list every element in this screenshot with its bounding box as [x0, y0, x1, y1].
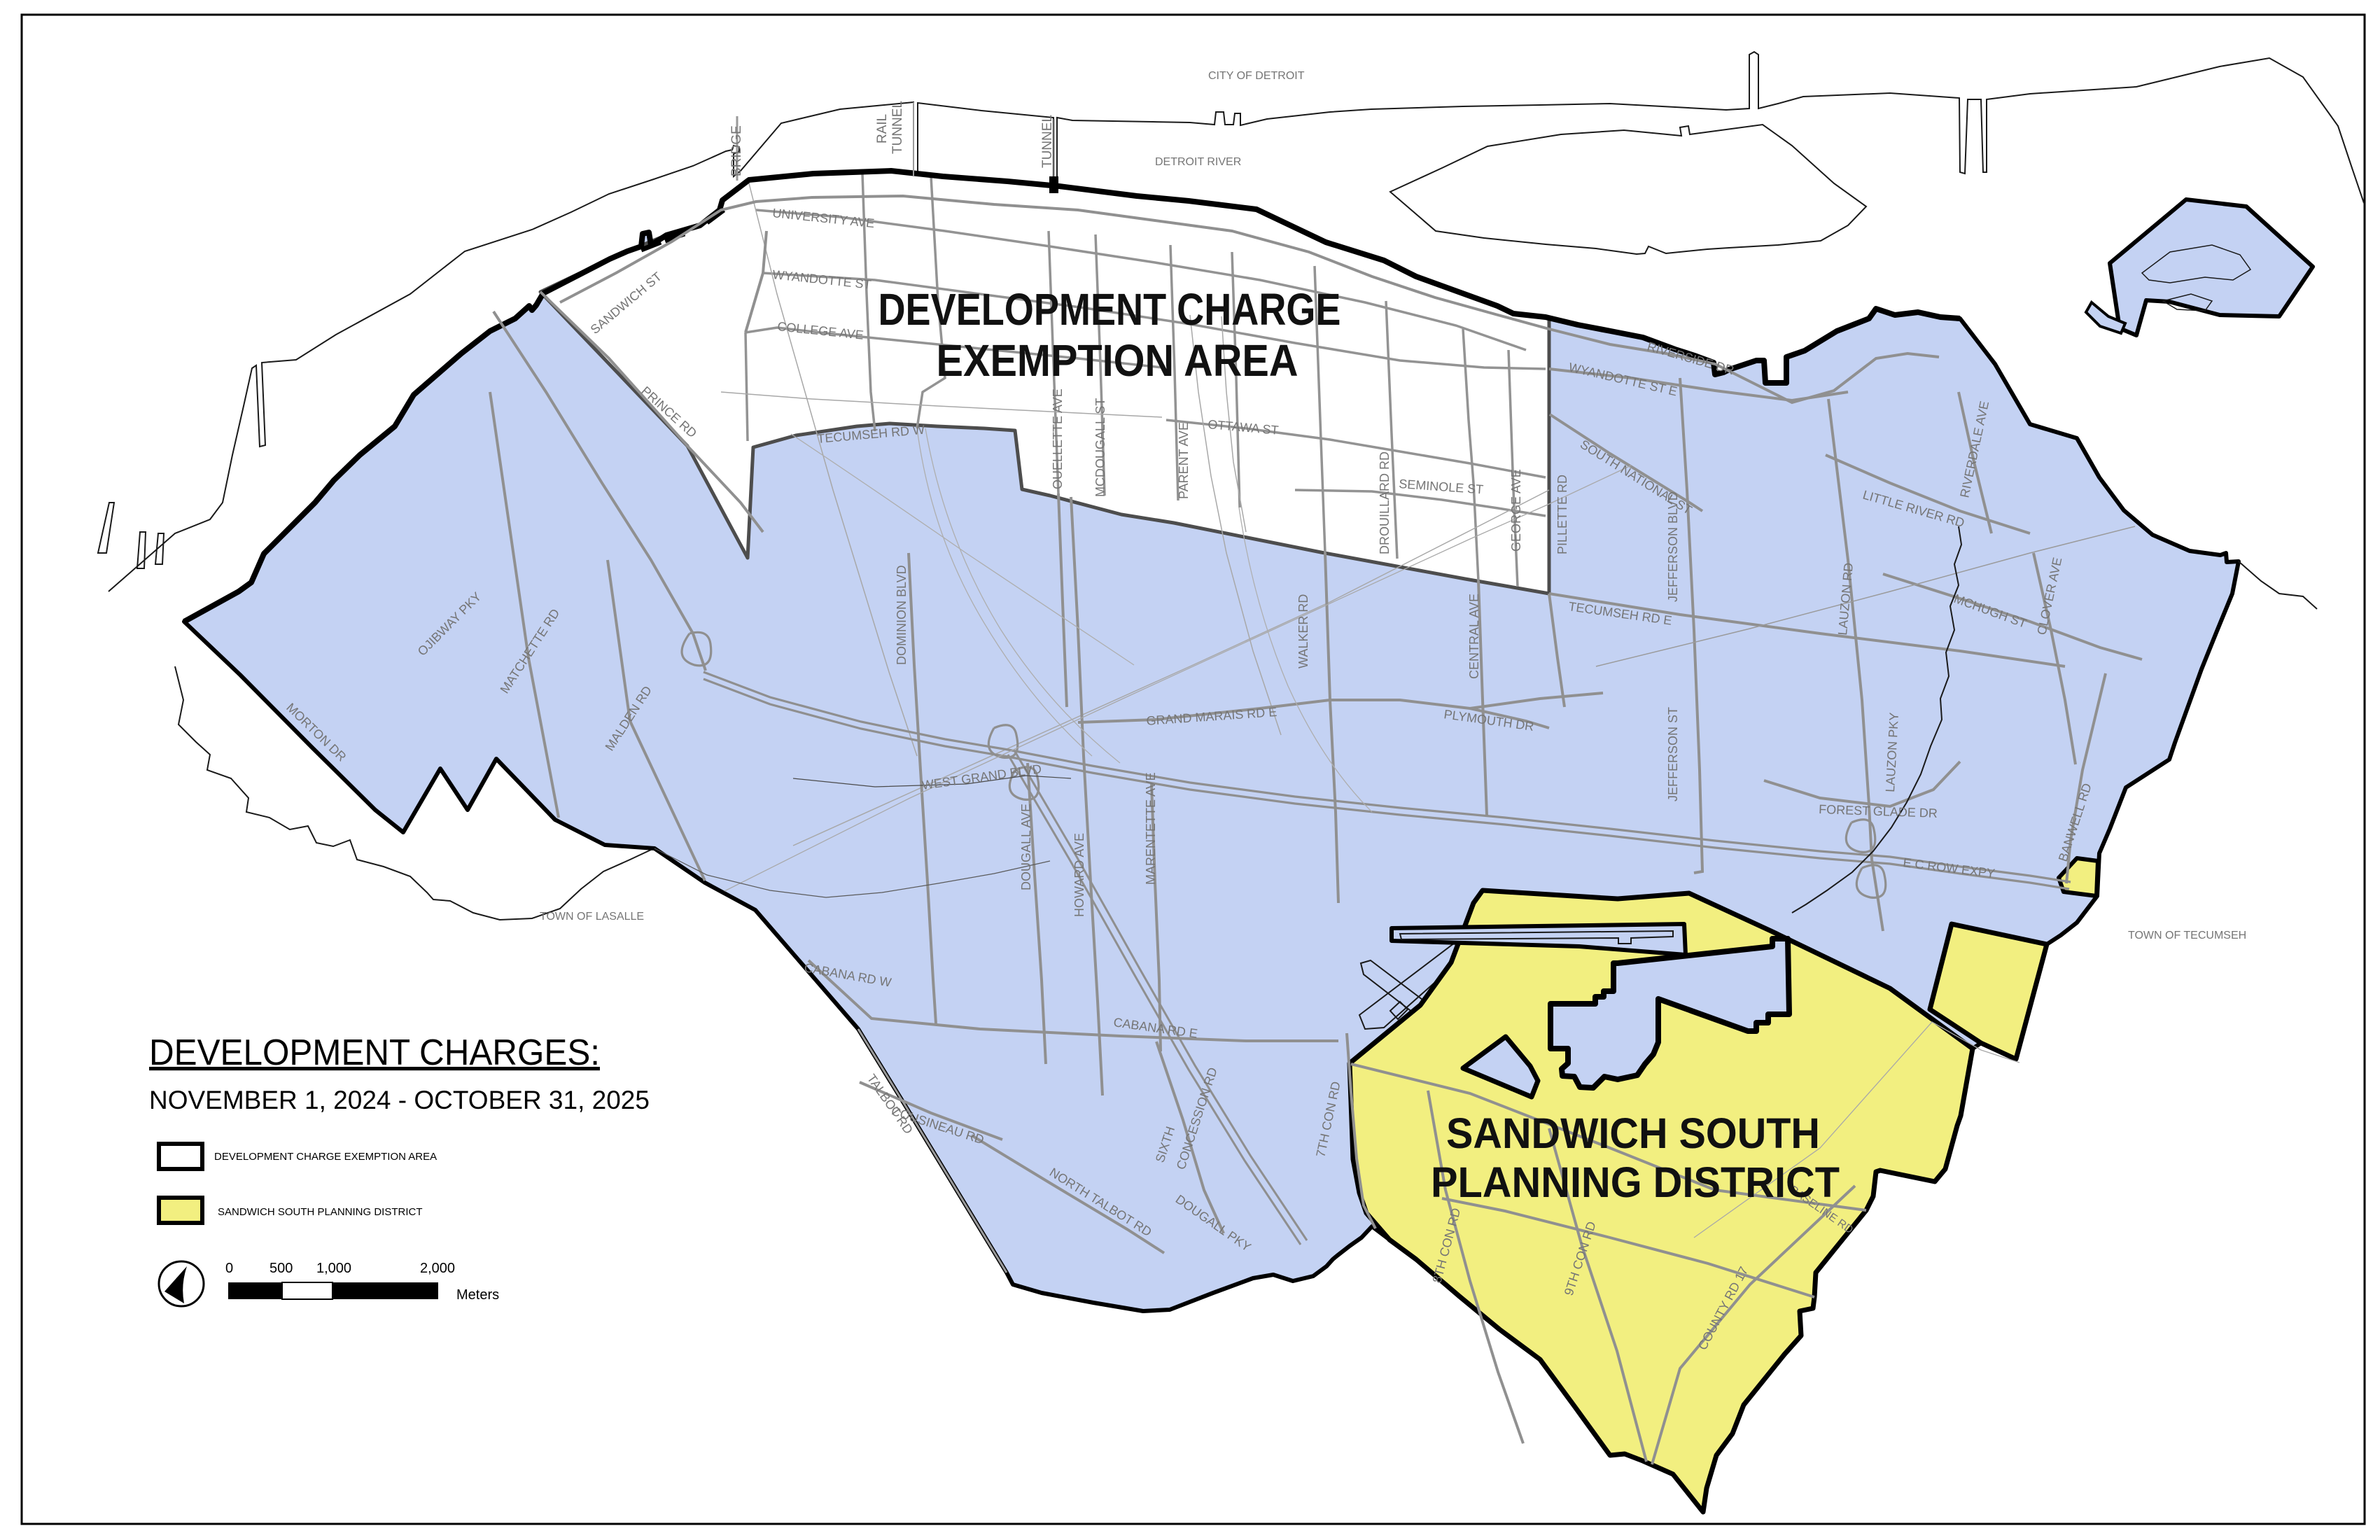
svg-text:PILLETTE RD: PILLETTE RD — [1555, 475, 1569, 554]
svg-text:GEORGE AVE: GEORGE AVE — [1509, 469, 1523, 552]
svg-text:WALKER RD: WALKER RD — [1296, 594, 1310, 668]
svg-text:DOUGALL AVE: DOUGALL AVE — [1019, 804, 1033, 890]
svg-text:1,000: 1,000 — [316, 1261, 351, 1276]
svg-text:EXEMPTION AREA: EXEMPTION AREA — [937, 335, 1298, 386]
svg-text:JEFFERSON BLVD: JEFFERSON BLVD — [1666, 491, 1680, 602]
svg-text:JEFFERSON ST: JEFFERSON ST — [1666, 707, 1680, 801]
svg-text:DROUILLARD RD: DROUILLARD RD — [1378, 451, 1392, 554]
svg-text:SANDWICH SOUTH: SANDWICH SOUTH — [1446, 1109, 1820, 1157]
svg-text:DETROIT RIVER: DETROIT RIVER — [1155, 156, 1241, 168]
svg-text:0: 0 — [225, 1261, 233, 1276]
svg-text:CITY OF DETROIT: CITY OF DETROIT — [1208, 70, 1305, 82]
svg-text:OUELLETTE AVE: OUELLETTE AVE — [1051, 388, 1065, 489]
svg-text:DEVELOPMENT CHARGES:: DEVELOPMENT CHARGES: — [149, 1032, 600, 1073]
svg-text:PARENT AVE: PARENT AVE — [1177, 422, 1191, 499]
svg-text:TOWN OF TECUMSEH: TOWN OF TECUMSEH — [2128, 930, 2246, 941]
svg-text:HOWARD AVE: HOWARD AVE — [1072, 833, 1086, 917]
svg-text:CENTRAL AVE: CENTRAL AVE — [1467, 594, 1481, 679]
svg-text:MARENTETTE AVE: MARENTETTE AVE — [1144, 772, 1158, 885]
svg-text:PLANNING DISTRICT: PLANNING DISTRICT — [1431, 1158, 1840, 1206]
svg-text:RAIL: RAIL — [875, 114, 890, 143]
svg-text:TUNNEL: TUNNEL — [890, 101, 905, 154]
svg-text:NOVEMBER 1, 2024 - OCTOBER 31,: NOVEMBER 1, 2024 - OCTOBER 31, 2025 — [149, 1086, 650, 1114]
svg-text:BRIDGE: BRIDGE — [729, 125, 744, 176]
svg-text:TUNNEL: TUNNEL — [1040, 115, 1055, 168]
svg-text:TOWN OF LASALLE: TOWN OF LASALLE — [540, 911, 644, 923]
svg-text:500: 500 — [269, 1261, 293, 1276]
svg-text:DOMINION BLVD: DOMINION BLVD — [895, 565, 909, 665]
svg-text:SANDWICH SOUTH PLANNING DISTRI: SANDWICH SOUTH PLANNING DISTRICT — [218, 1206, 423, 1218]
svg-text:2,000: 2,000 — [420, 1261, 455, 1276]
svg-text:Meters: Meters — [456, 1287, 499, 1303]
svg-text:MCDOUGALL ST: MCDOUGALL ST — [1093, 398, 1107, 497]
svg-text:DEVELOPMENT CHARGE: DEVELOPMENT CHARGE — [878, 284, 1341, 335]
svg-text:DEVELOPMENT CHARGE EXEMPTION A: DEVELOPMENT CHARGE EXEMPTION AREA — [214, 1151, 437, 1163]
